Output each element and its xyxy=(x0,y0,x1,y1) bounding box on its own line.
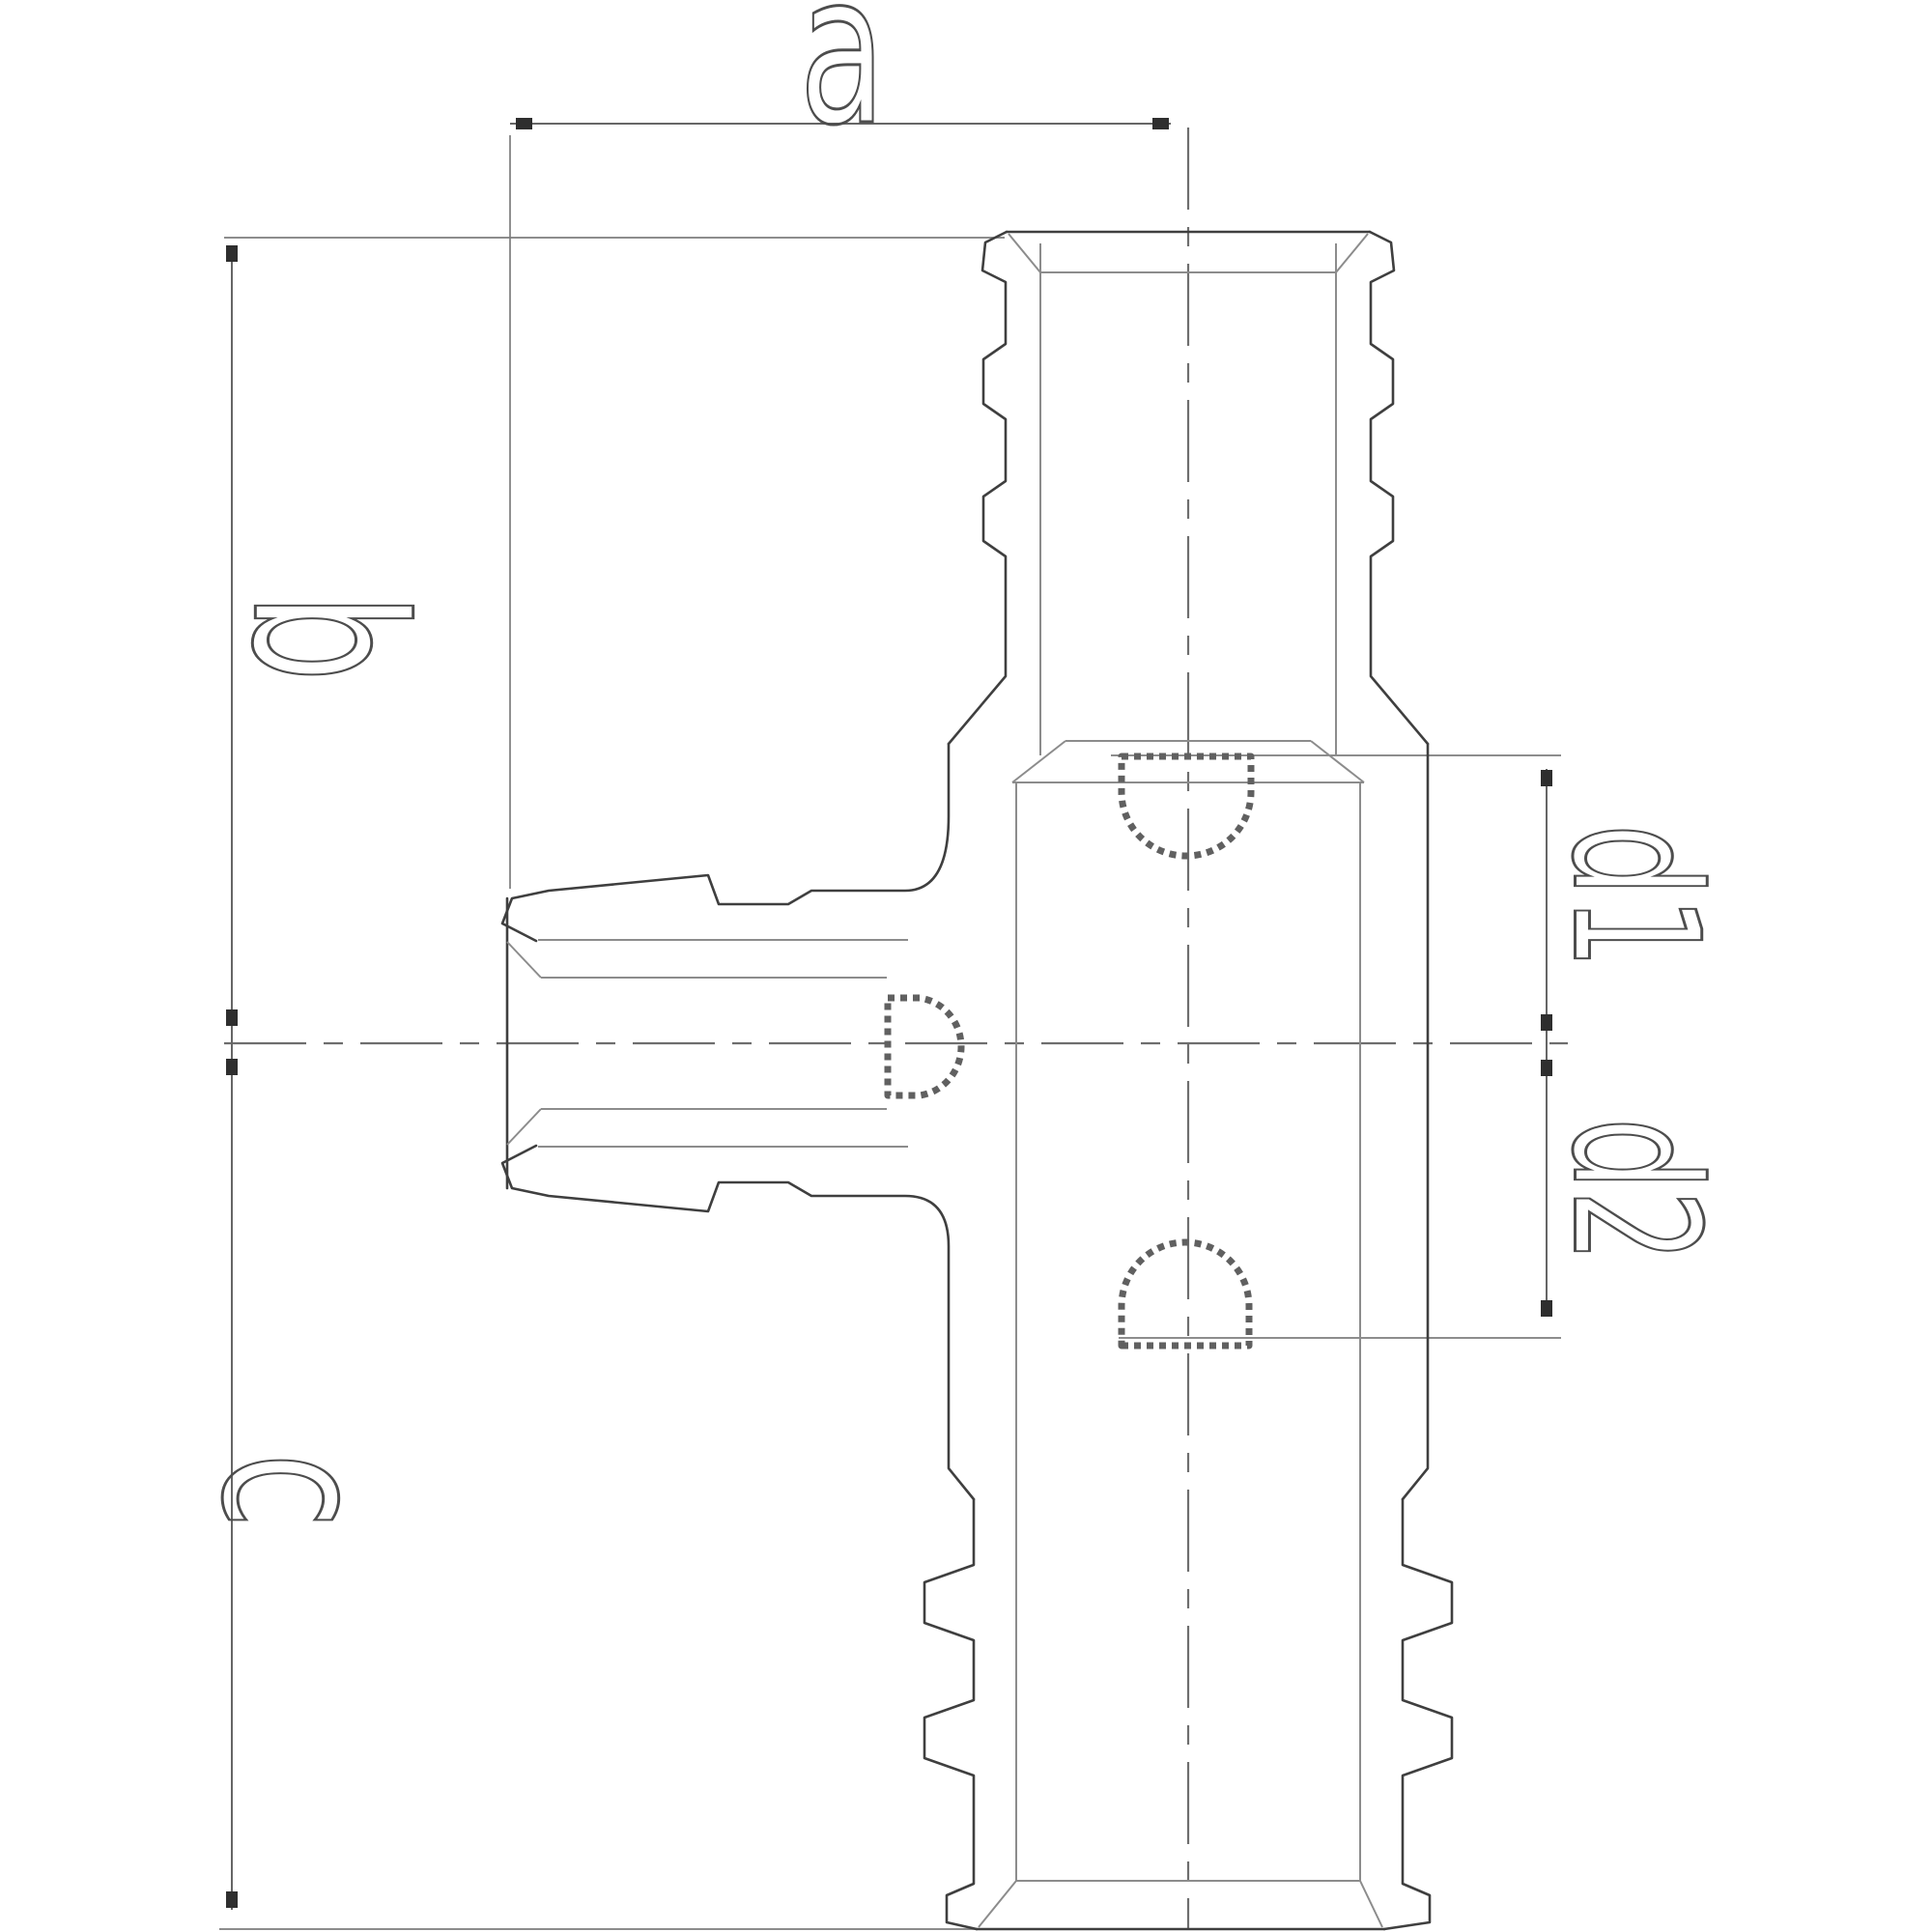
dimension-terminator xyxy=(226,1059,238,1075)
dimension-terminator xyxy=(1541,1300,1552,1317)
dimension-label-c: c xyxy=(177,1453,412,1529)
dimension-label-b: b xyxy=(206,593,447,683)
dimension-terminator xyxy=(1541,1060,1552,1076)
dimension-label-d1: d1 xyxy=(1534,824,1736,969)
crimp-clip-symbol-top xyxy=(1122,756,1251,856)
crimp-clip-symbol-bottom xyxy=(1122,1242,1249,1346)
dimension-line-b-c xyxy=(226,245,238,1910)
dimension-terminator xyxy=(1152,118,1169,129)
dimension-label-d2: d2 xyxy=(1534,1118,1736,1263)
dimension-terminator xyxy=(226,1009,238,1026)
dimension-terminator xyxy=(1541,770,1552,786)
technical-drawing-sheet: a b c d1 d2 xyxy=(0,0,1932,1932)
tee-fitting-technical-drawing: a b c d1 d2 xyxy=(0,0,1932,1932)
dimension-label-a: a xyxy=(799,0,886,171)
fitting-outline xyxy=(502,232,1452,1929)
dimension-terminator xyxy=(226,245,238,262)
dimension-terminator xyxy=(1541,1014,1552,1031)
dimension-terminator xyxy=(516,118,532,129)
crimp-clip-symbol-left xyxy=(888,998,961,1095)
dimension-terminator xyxy=(226,1891,238,1908)
